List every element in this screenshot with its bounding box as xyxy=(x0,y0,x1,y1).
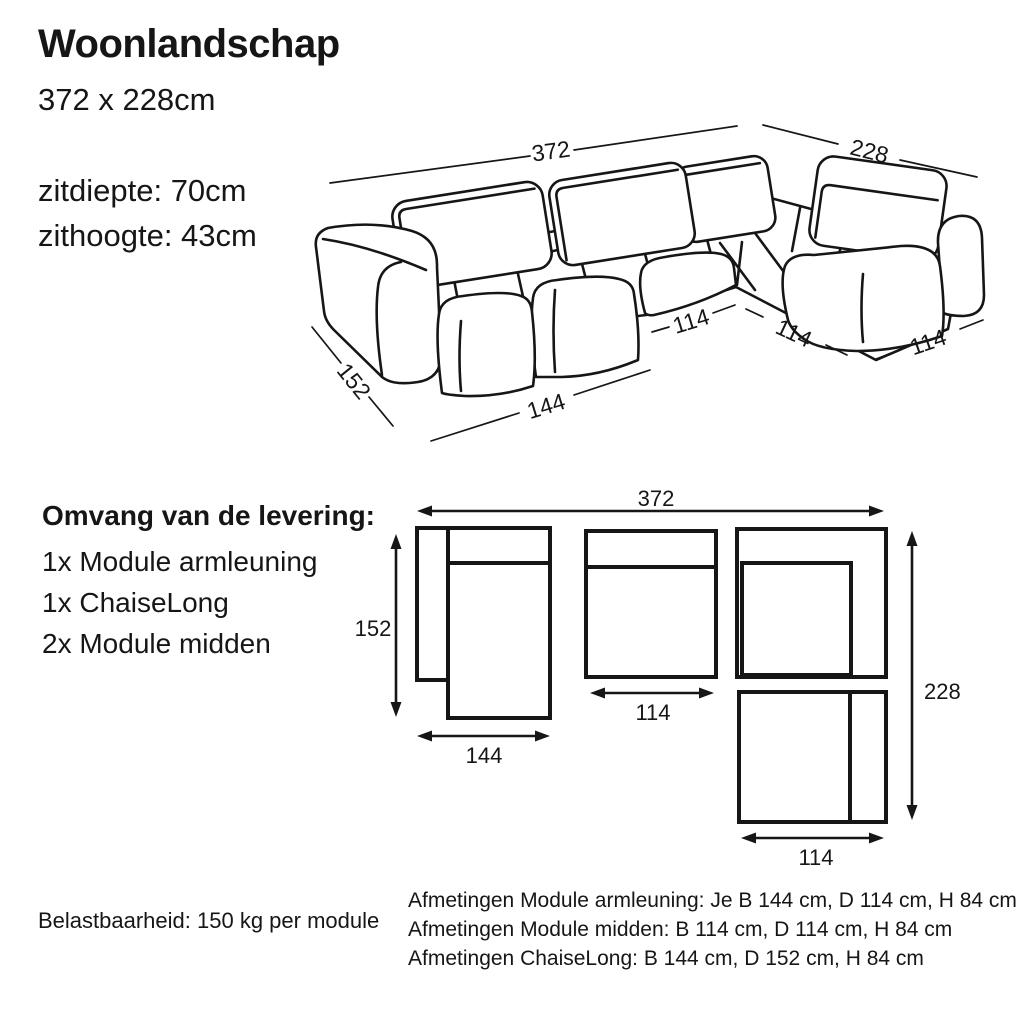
back-pillow-right xyxy=(807,154,948,261)
fp-chaise-width-label: 144 xyxy=(466,743,503,768)
floorplan-right-module xyxy=(739,692,886,822)
right-armrest xyxy=(938,216,984,316)
fp-total-depth-label: 228 xyxy=(924,679,961,704)
floorplan-middle-module xyxy=(586,531,716,677)
sofa-illustration: 372 228 152 144 114 114 114 xyxy=(300,115,1010,475)
module-dimension-line: Afmetingen Module armleuning: Je B 144 c… xyxy=(408,886,1017,915)
module-dimension-line: Afmetingen ChaiseLong: B 144 cm, D 152 c… xyxy=(408,944,1017,973)
seat-height-text: zithoogte: 43cm xyxy=(38,213,257,258)
overall-size-text: 372 x 228cm xyxy=(38,82,216,118)
fp-middle-width-label: 114 xyxy=(635,700,670,725)
middle-module-cushion xyxy=(640,253,736,316)
seat-depth-text: zitdiepte: 70cm xyxy=(38,168,257,213)
left-armrest xyxy=(316,225,441,384)
seat-specs: zitdiepte: 70cm zithoogte: 43cm xyxy=(38,168,257,258)
chaise-cushion-left xyxy=(438,293,535,396)
page-title: Woonlandschap xyxy=(38,22,340,67)
delivery-item: 1x ChaiseLong xyxy=(42,582,375,623)
fp-total-width-label: 372 xyxy=(638,486,675,511)
delivery-heading: Omvang van de levering: xyxy=(42,500,375,532)
delivery-item: 1x Module armleuning xyxy=(42,541,375,582)
load-capacity-text: Belastbaarheid: 150 kg per module xyxy=(38,908,379,934)
floorplan-chaiselong xyxy=(417,528,550,718)
module-dimensions-list: Afmetingen Module armleuning: Je B 144 c… xyxy=(408,886,1017,973)
fp-corner-width-label: 114 xyxy=(798,845,833,870)
chaise-cushion-right xyxy=(532,277,639,377)
delivery-contents: Omvang van de levering: 1x Module armleu… xyxy=(42,500,375,664)
delivery-item: 2x Module midden xyxy=(42,623,375,664)
module-dimension-line: Afmetingen Module midden: B 114 cm, D 11… xyxy=(408,915,1017,944)
dim-chaise-width-label: 144 xyxy=(524,388,568,424)
floorplan-corner-module xyxy=(737,529,886,677)
module-floorplan: 372 152 144 114 228 114 xyxy=(350,480,970,880)
fp-chaise-depth-label: 152 xyxy=(355,616,392,641)
dim-total-width-label: 372 xyxy=(530,136,572,167)
